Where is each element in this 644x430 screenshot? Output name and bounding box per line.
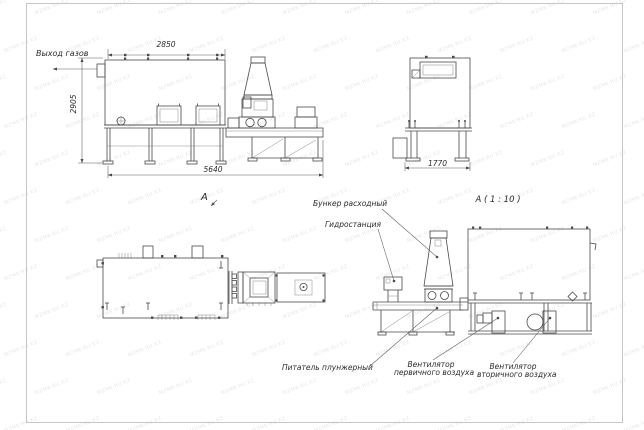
- view-a-label: А: [201, 194, 208, 202]
- primary-fan-label-line2: первичного воздуха: [394, 369, 468, 377]
- front-view: [97, 57, 323, 164]
- drawing-sheet: MZMK-RU.KZMZMK-RU.KZMZMK-RU.KZMZMK-RU.KZ…: [0, 0, 644, 430]
- end-view: [393, 56, 472, 171]
- plan-view: [97, 246, 325, 320]
- dimension-2850: 2850: [141, 41, 191, 49]
- leader-lines: [370, 209, 551, 366]
- section-view: [373, 227, 596, 336]
- secondary-fan-label: Вентилятор вторичного воздуха: [477, 363, 549, 379]
- secondary-fan-label-line2: вторичного воздуха: [477, 371, 549, 379]
- gas-outlet-label: Выход газов: [36, 50, 88, 58]
- primary-fan-label: Вентилятор первичного воздуха: [394, 361, 468, 377]
- hopper-label: Бункер расходный: [313, 200, 387, 208]
- dimension-1770: 1770: [410, 160, 465, 168]
- plunger-feeder-label: Питатель плунжерный: [282, 364, 373, 372]
- hydrostation-label: Гидростанция: [325, 221, 381, 229]
- dimension-2905: 2905: [70, 82, 78, 126]
- front-view-dimensions: [53, 49, 323, 206]
- section-a-title: А ( 1 : 10 ): [458, 196, 538, 204]
- dimension-5640: 5640: [183, 166, 243, 174]
